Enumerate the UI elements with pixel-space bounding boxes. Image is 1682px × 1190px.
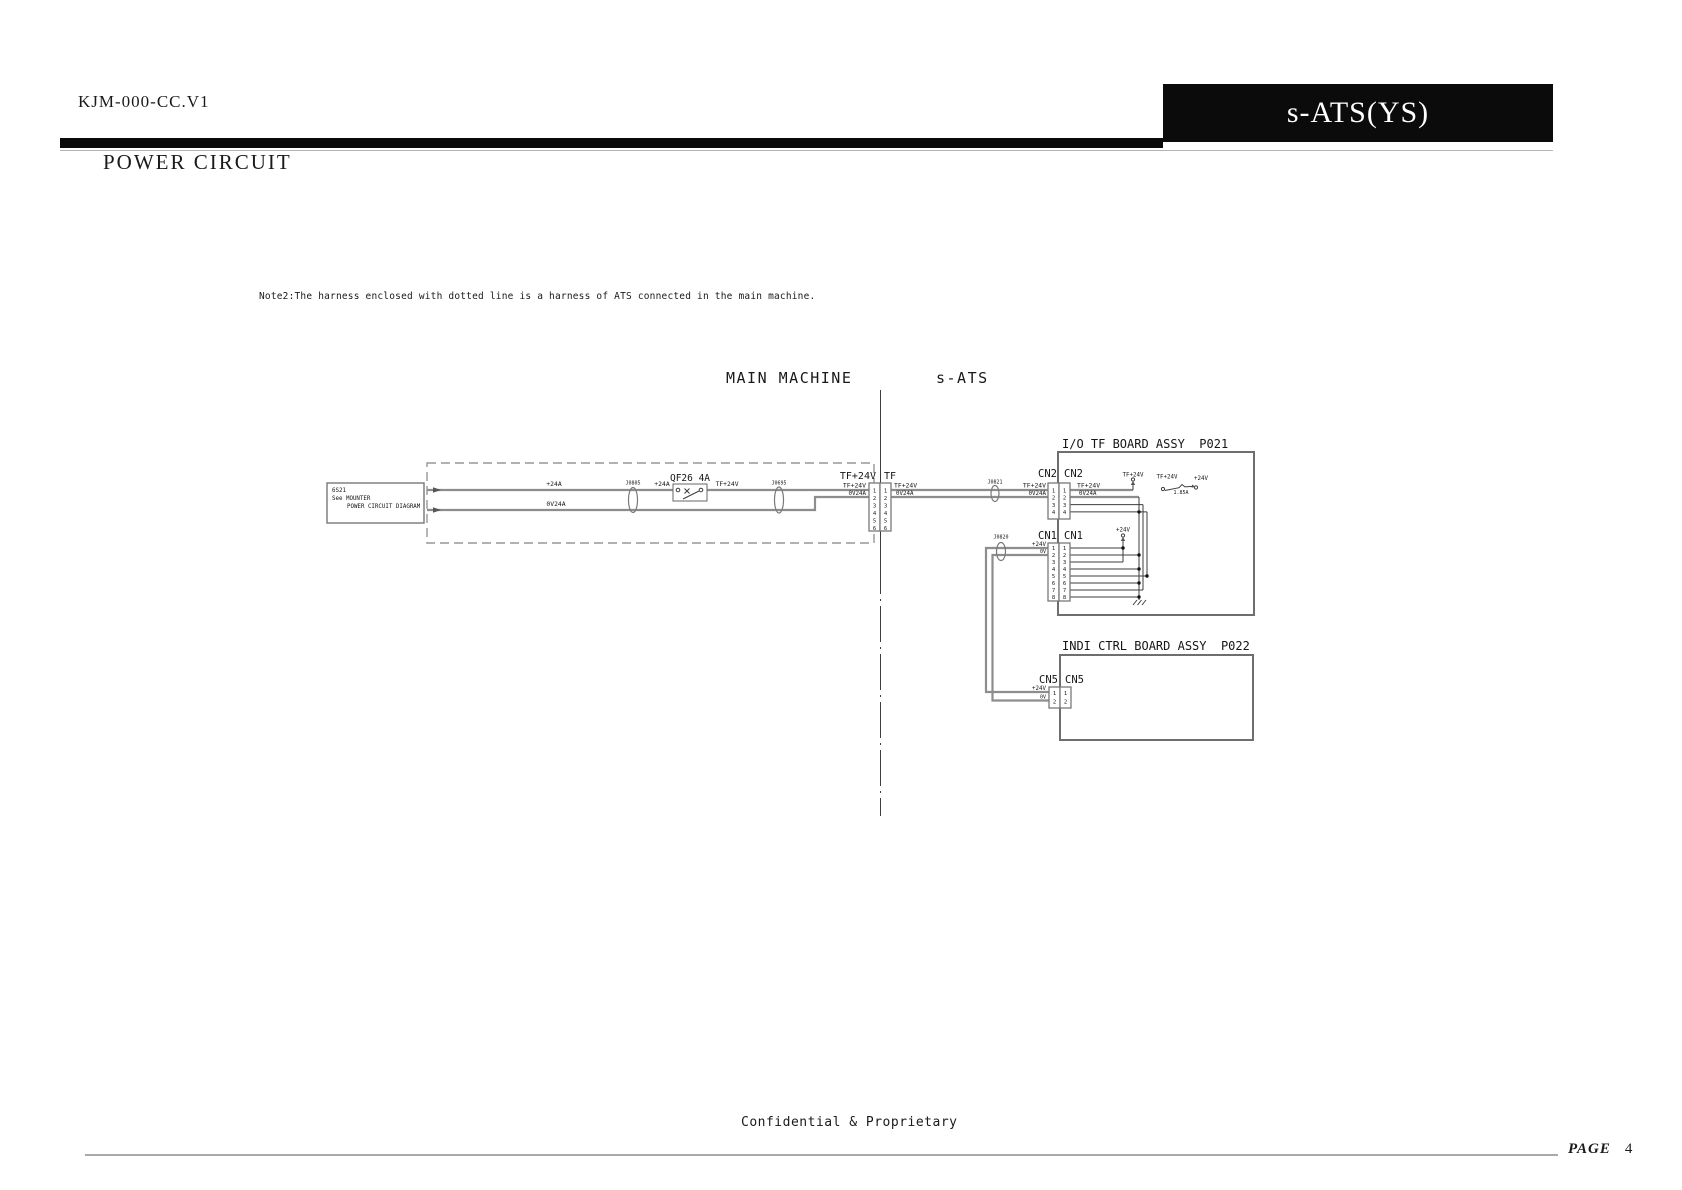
pin-number: 6 (1052, 581, 1055, 587)
wire-arrow (433, 487, 441, 492)
pin-number: 6 (884, 526, 887, 532)
manual-page: KJM-000-CC.V1 s-ATS(YS) POWER CIRCUIT No… (0, 0, 1682, 1190)
chassis-ground-symbol (1133, 600, 1146, 605)
wire-label-tf24v: TF+24V (843, 482, 866, 490)
pin-number: 5 (884, 518, 887, 524)
connector-cn5: 12 12 (1049, 687, 1071, 708)
breaker-label: QF26 4A (670, 473, 710, 484)
connector-label-j0695: J0695 (771, 481, 786, 487)
pin-number: 6 (873, 526, 876, 532)
wire-label-0v: 0V (1040, 549, 1046, 555)
pin-number: 5 (1063, 574, 1066, 580)
wire-label-0v24a: 0V24A (849, 491, 867, 497)
wire-label-24a: +24A (654, 480, 670, 488)
cn5-label-cable-side: CN5 (1039, 674, 1058, 686)
cn5-label-board-side: CN5 (1065, 674, 1084, 686)
source-box-line3: POWER CIRCUIT DIAGRAM (347, 504, 421, 510)
connector-label-j0821: J0821 (987, 480, 1002, 486)
pin-number: 2 (884, 496, 887, 502)
pin-number: 1 (1063, 488, 1066, 494)
power-wires (427, 487, 1139, 700)
connector-cn2: 1234 1234 (1048, 483, 1070, 519)
pin-number: 3 (884, 503, 887, 509)
pin-number: 2 (1053, 699, 1056, 705)
wire-label-0v24a: 0V24A (896, 491, 914, 497)
indi-board-title: INDI CTRL BOARD ASSY P022 (1062, 639, 1250, 653)
pin-number: 3 (873, 503, 876, 509)
pin-number: 1 (873, 488, 876, 494)
wire-label-24v: +24V (1032, 542, 1046, 548)
schematic-labels: +24A 0V24A J0805 +24A QF26 4A TF+24V J06… (546, 437, 1250, 701)
pin-number: 2 (1052, 553, 1055, 559)
wire-label-0v: 0V (1040, 695, 1046, 701)
pin-number: 2 (1052, 496, 1055, 502)
pin-number: 3 (1052, 503, 1055, 509)
connector-label-j0805: J0805 (625, 481, 640, 487)
pin-number: 1 (1052, 488, 1055, 494)
connector-tf: 123456 123456 (869, 483, 891, 532)
pin-number: 6 (1063, 581, 1066, 587)
wire-label-tf24v: TF+24V (1077, 482, 1100, 490)
pin-number: 2 (1063, 553, 1066, 559)
page-number: PAGE4 (1568, 1141, 1632, 1158)
source-box-line1: 6S21 (332, 488, 346, 494)
pin-number: 3 (1063, 560, 1066, 566)
page-label: PAGE (1568, 1141, 1611, 1157)
tf-connector-right-label: TF (884, 471, 896, 482)
testpoint-label-24v: +24V (1116, 528, 1130, 534)
wire-label-24a: +24A (546, 480, 562, 488)
footer-rule (85, 1154, 1558, 1156)
cn2-label-cable-side: CN2 (1038, 468, 1057, 480)
connector-label-j0820: J0820 (993, 535, 1008, 541)
junction-dots (1121, 510, 1148, 599)
source-box-line2: See MOUNTER (332, 496, 371, 502)
pin-number: 5 (873, 518, 876, 524)
wire-label-tf24v: TF+24V (715, 480, 738, 488)
harness-dashed-box (427, 463, 874, 543)
wire-label-0v24a: 0V24A (1079, 491, 1097, 497)
pin-number: 1 (1052, 546, 1055, 552)
cn1-label-board-side: CN1 (1064, 530, 1083, 542)
wire-label-tf24v: TF+24V (894, 482, 917, 490)
wire-label-24v: +24V (1032, 686, 1046, 692)
cn1-label-cable-side: CN1 (1038, 530, 1057, 542)
fuse-in-label: TF+24V (1157, 475, 1178, 481)
pin-number: 2 (1064, 699, 1067, 705)
breaker-qf26 (673, 484, 707, 501)
tf-connector-left-label: TF+24V (840, 471, 876, 482)
fuse-out-label: +24V (1194, 476, 1208, 482)
pin-number: 3 (1052, 560, 1055, 566)
power-circuit-schematic: 6S21 See MOUNTER POWER CIRCUIT DIAGRAM 1… (0, 0, 1682, 1190)
pin-number: 1 (1063, 546, 1066, 552)
cn2-label-board-side: CN2 (1064, 468, 1083, 480)
source-ref-box: 6S21 See MOUNTER POWER CIRCUIT DIAGRAM (327, 483, 424, 523)
inline-connector-j0805 (629, 488, 638, 513)
connector-cn1: 12345678 12345678 (1048, 543, 1070, 601)
pin-number: 1 (884, 488, 887, 494)
io-board-title: I/O TF BOARD ASSY P021 (1062, 437, 1228, 451)
page-number-value: 4 (1625, 1141, 1633, 1157)
inline-connector-j0820 (997, 543, 1006, 561)
wire-arrow (433, 507, 441, 512)
testpoint-tf24v (1131, 478, 1135, 485)
fuse-rating-label: 1.85A (1173, 490, 1188, 496)
inline-connector-j0821 (991, 486, 999, 502)
wire-label-tf24v: TF+24V (1023, 482, 1046, 490)
testpoint-24v (1121, 534, 1125, 541)
pin-number: 3 (1063, 503, 1066, 509)
pin-number: 1 (1053, 691, 1056, 697)
pin-number: 7 (1052, 588, 1055, 594)
pin-number: 7 (1063, 588, 1066, 594)
pin-number: 1 (1064, 691, 1067, 697)
pin-number: 5 (1052, 574, 1055, 580)
wire-label-0v24a: 0V24A (1029, 491, 1047, 497)
indi-ctrl-board-outline (1060, 655, 1253, 740)
confidential-notice: Confidential & Proprietary (741, 1115, 958, 1130)
wire-label-0v24a: 0V24A (546, 500, 565, 508)
pin-number: 2 (1063, 496, 1066, 502)
testpoint-label-tf24v: TF+24V (1123, 473, 1144, 479)
pin-number: 2 (873, 496, 876, 502)
